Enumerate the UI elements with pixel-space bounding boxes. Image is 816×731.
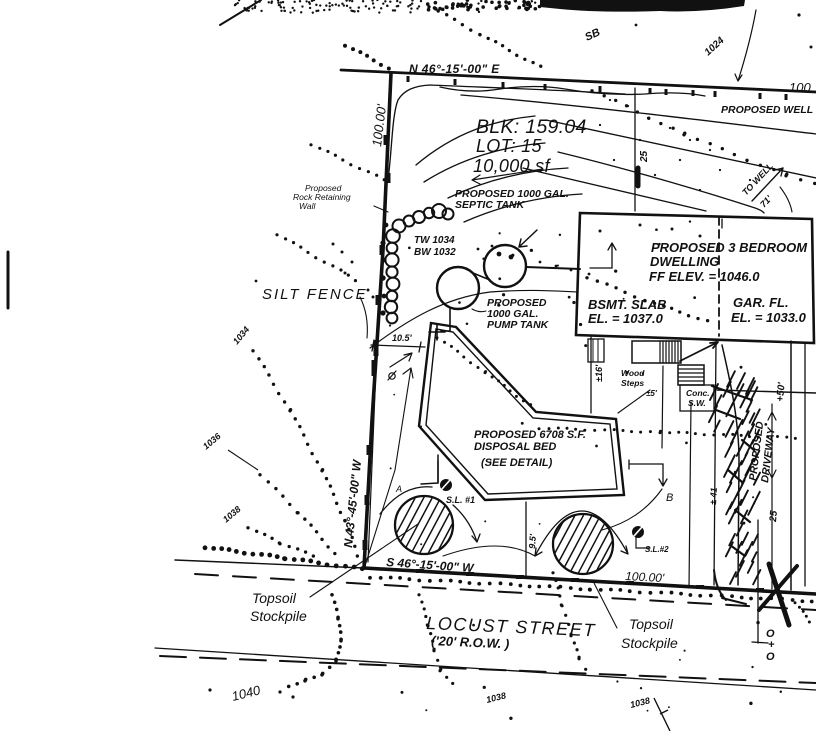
svg-text:N 46°-15'-00" E: N 46°-15'-00" E [409,62,500,76]
svg-text:TW 1034: TW 1034 [414,235,455,246]
svg-text:9.5': 9.5' [527,533,538,549]
svg-text:Topsoil: Topsoil [252,590,297,606]
svg-text:EL. = 1033.0: EL. = 1033.0 [731,310,807,325]
svg-text:(SEE DETAIL): (SEE DETAIL) [481,457,553,469]
svg-text:S.L. #1: S.L. #1 [446,495,475,505]
svg-text:±5': ±5' [646,389,658,398]
svg-text:B: B [666,492,673,504]
svg-text:Topsoil: Topsoil [629,616,674,632]
svg-text:Wall: Wall [299,201,316,211]
svg-text:O: O [766,651,775,663]
svg-text:25: 25 [768,510,780,523]
svg-text:DWELLING: DWELLING [650,254,719,269]
svg-text:Stockpile: Stockpile [250,608,307,624]
svg-text:S.L.#2: S.L.#2 [645,545,669,554]
svg-text:100.: 100. [789,80,814,95]
svg-text:BSMT. SLAB: BSMT. SLAB [588,297,666,312]
svg-text:Steps: Steps [621,378,644,388]
svg-text:DISPOSAL BED: DISPOSAL BED [474,441,556,453]
svg-text:+50': +50' [775,381,788,402]
svg-text:Conc.: Conc. [686,388,710,398]
svg-text:BLK: 159.04: BLK: 159.04 [476,116,587,138]
svg-text:±16': ±16' [594,364,604,382]
svg-text:PROPOSED WELL: PROPOSED WELL [721,104,813,116]
svg-text:10,000 sf: 10,000 sf [473,156,551,176]
svg-text:100.00': 100.00' [625,569,665,585]
svg-text:S.W.: S.W. [688,398,706,408]
svg-text:EL. = 1037.0: EL. = 1037.0 [588,311,664,326]
svg-text:A: A [395,484,402,494]
svg-text:PUMP TANK: PUMP TANK [487,319,550,331]
svg-text:Stockpile: Stockpile [621,635,678,651]
svg-text:SEPTIC TANK: SEPTIC TANK [455,199,526,211]
svg-text:BW 1032: BW 1032 [414,247,456,258]
svg-text:10.5': 10.5' [392,333,413,343]
svg-text:+: + [768,639,775,651]
svg-text:PROPOSED 6708 S.F.: PROPOSED 6708 S.F. [474,429,586,441]
svg-text:FF ELEV. = 1046.0: FF ELEV. = 1046.0 [649,269,760,284]
svg-text:SILT FENCE: SILT FENCE [262,286,368,303]
svg-text:PROPOSED 3 BEDROOM: PROPOSED 3 BEDROOM [651,240,808,255]
svg-text:Wood: Wood [621,368,645,378]
svg-text:± 41: ± 41 [708,487,719,505]
svg-text:GAR. FL.: GAR. FL. [733,295,789,310]
svg-text:25: 25 [639,150,650,163]
svg-text:LOT: 15: LOT: 15 [476,136,542,156]
